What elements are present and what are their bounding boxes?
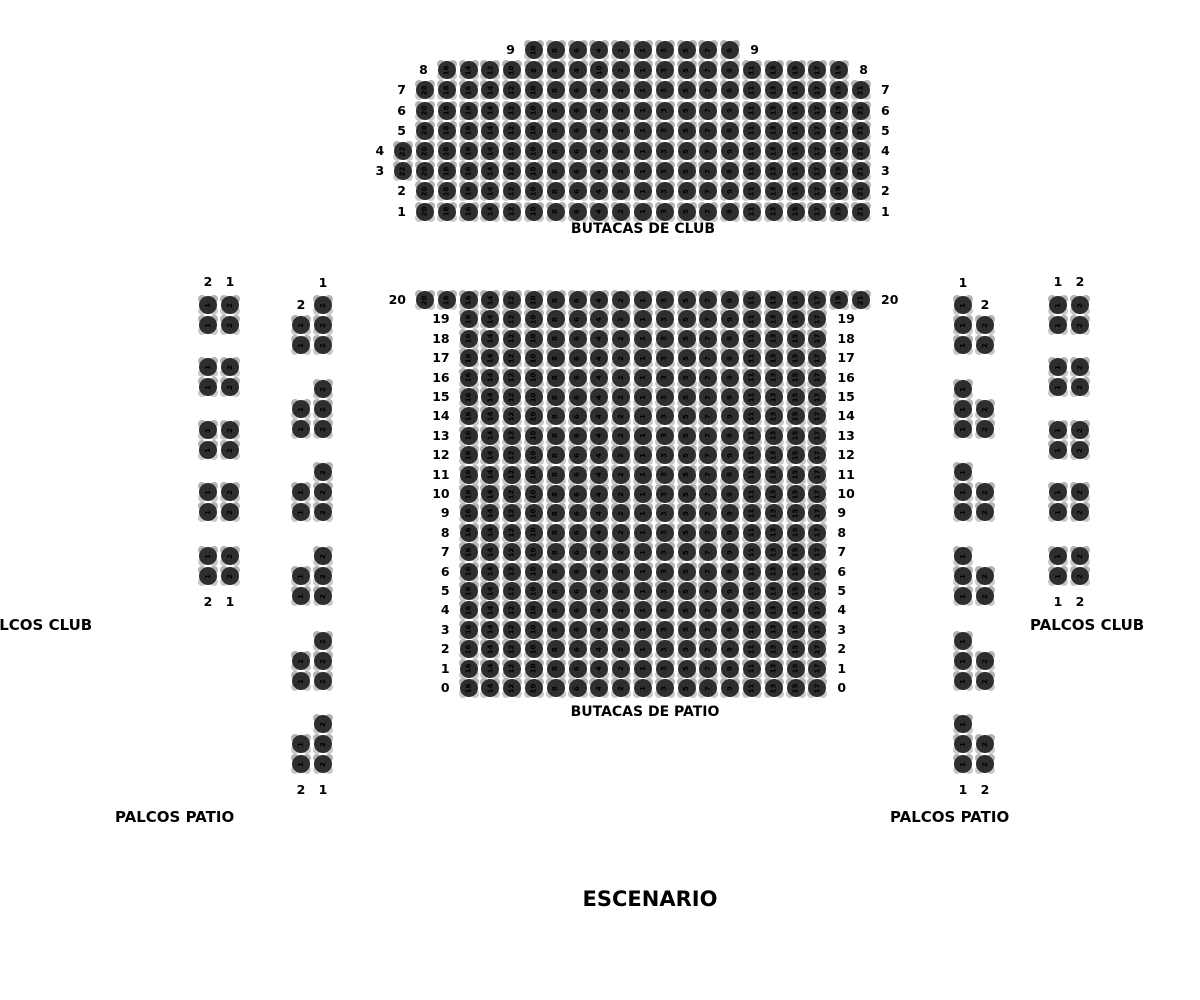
- seat[interactable]: 4: [590, 504, 608, 522]
- seat[interactable]: 3: [656, 582, 674, 600]
- seat[interactable]: 13: [765, 330, 783, 348]
- seat[interactable]: 2: [612, 142, 630, 160]
- seat[interactable]: 2: [612, 601, 630, 619]
- seat[interactable]: 16: [460, 122, 478, 140]
- seat[interactable]: 16: [460, 621, 478, 639]
- seat[interactable]: 1: [1049, 378, 1067, 396]
- seat[interactable]: 2: [612, 679, 630, 697]
- seat[interactable]: 5: [678, 407, 696, 425]
- seat[interactable]: 5: [678, 466, 696, 484]
- seat[interactable]: 15: [787, 427, 805, 445]
- seat[interactable]: 1: [292, 400, 310, 418]
- seat[interactable]: 14: [481, 142, 499, 160]
- seat[interactable]: 5: [678, 182, 696, 200]
- seat[interactable]: 5: [678, 349, 696, 367]
- seat[interactable]: 17: [808, 81, 826, 99]
- seat[interactable]: 3: [656, 291, 674, 309]
- seat[interactable]: 17: [808, 330, 826, 348]
- seat[interactable]: 1: [634, 388, 652, 406]
- seat[interactable]: 14: [481, 446, 499, 464]
- seat[interactable]: 13: [765, 485, 783, 503]
- seat[interactable]: 2: [612, 41, 630, 59]
- seat[interactable]: 9: [721, 621, 739, 639]
- seat[interactable]: 5: [678, 504, 696, 522]
- seat[interactable]: 8: [547, 142, 565, 160]
- seat[interactable]: 6: [569, 524, 587, 542]
- seat[interactable]: 13: [765, 621, 783, 639]
- seat[interactable]: 12: [503, 330, 521, 348]
- seat[interactable]: 17: [808, 640, 826, 658]
- seat[interactable]: 8: [547, 203, 565, 221]
- seat[interactable]: 5: [678, 563, 696, 581]
- seat[interactable]: 12: [503, 660, 521, 678]
- seat[interactable]: 15: [787, 81, 805, 99]
- seat[interactable]: 14: [481, 427, 499, 445]
- seat[interactable]: 13: [765, 446, 783, 464]
- seat[interactable]: 12: [503, 582, 521, 600]
- seat[interactable]: 6: [569, 640, 587, 658]
- seat[interactable]: 1: [199, 503, 217, 521]
- seat[interactable]: 18: [438, 122, 456, 140]
- seat[interactable]: 6: [569, 543, 587, 561]
- seat[interactable]: 3: [656, 41, 674, 59]
- seat[interactable]: 7: [699, 543, 717, 561]
- seat[interactable]: 6: [569, 660, 587, 678]
- seat[interactable]: 3: [656, 330, 674, 348]
- seat[interactable]: 14: [481, 524, 499, 542]
- seat[interactable]: 7: [699, 407, 717, 425]
- seat[interactable]: 11: [743, 182, 761, 200]
- seat[interactable]: 13: [765, 660, 783, 678]
- seat[interactable]: 9: [721, 81, 739, 99]
- seat[interactable]: 16: [460, 466, 478, 484]
- seat[interactable]: 8: [547, 466, 565, 484]
- seat[interactable]: 1: [199, 567, 217, 585]
- seat[interactable]: 1: [634, 61, 652, 79]
- seat[interactable]: 21: [852, 291, 870, 309]
- seat[interactable]: 6: [569, 407, 587, 425]
- seat[interactable]: 11: [743, 349, 761, 367]
- seat[interactable]: 20: [416, 81, 434, 99]
- seat[interactable]: 2: [976, 755, 994, 773]
- seat[interactable]: 14: [481, 601, 499, 619]
- seat[interactable]: 9: [721, 349, 739, 367]
- seat[interactable]: 20: [416, 182, 434, 200]
- seat[interactable]: 16: [460, 524, 478, 542]
- seat[interactable]: 10: [525, 310, 543, 328]
- seat[interactable]: 10: [525, 427, 543, 445]
- seat[interactable]: 10: [525, 182, 543, 200]
- seat[interactable]: 15: [787, 640, 805, 658]
- seat[interactable]: 11: [743, 621, 761, 639]
- seat[interactable]: 6: [569, 81, 587, 99]
- seat[interactable]: 11: [743, 162, 761, 180]
- seat[interactable]: 8: [547, 582, 565, 600]
- seat[interactable]: 10: [525, 407, 543, 425]
- seat[interactable]: 17: [808, 601, 826, 619]
- seat[interactable]: 7: [699, 349, 717, 367]
- seat[interactable]: 8: [547, 369, 565, 387]
- seat[interactable]: 9: [721, 504, 739, 522]
- seat[interactable]: 3: [656, 485, 674, 503]
- seat[interactable]: 15: [787, 543, 805, 561]
- seat[interactable]: 2: [612, 621, 630, 639]
- seat[interactable]: 1: [634, 291, 652, 309]
- seat[interactable]: 16: [460, 679, 478, 697]
- seat[interactable]: 1: [292, 483, 310, 501]
- seat[interactable]: 13: [765, 427, 783, 445]
- seat[interactable]: 1: [954, 547, 972, 565]
- seat[interactable]: 2: [976, 587, 994, 605]
- seat[interactable]: 22: [394, 142, 412, 160]
- seat[interactable]: 15: [787, 310, 805, 328]
- seat[interactable]: 19: [830, 102, 848, 120]
- seat[interactable]: 2: [612, 122, 630, 140]
- seat[interactable]: 3: [656, 81, 674, 99]
- seat[interactable]: 12: [503, 679, 521, 697]
- seat[interactable]: 1: [199, 441, 217, 459]
- seat[interactable]: 5: [678, 446, 696, 464]
- seat[interactable]: 12: [503, 524, 521, 542]
- seat[interactable]: 14: [481, 310, 499, 328]
- seat[interactable]: 2: [1071, 316, 1089, 334]
- seat[interactable]: 1: [292, 567, 310, 585]
- seat[interactable]: 16: [460, 582, 478, 600]
- seat[interactable]: 4: [590, 660, 608, 678]
- seat[interactable]: 15: [787, 563, 805, 581]
- seat[interactable]: 17: [808, 660, 826, 678]
- seat[interactable]: 10: [525, 543, 543, 561]
- seat[interactable]: 9: [721, 182, 739, 200]
- seat[interactable]: 2: [612, 310, 630, 328]
- seat[interactable]: 1: [634, 543, 652, 561]
- seat[interactable]: 14: [481, 203, 499, 221]
- seat[interactable]: 17: [808, 182, 826, 200]
- seat[interactable]: 10: [525, 349, 543, 367]
- seat[interactable]: 6: [569, 41, 587, 59]
- seat[interactable]: 5: [678, 543, 696, 561]
- seat[interactable]: 1: [954, 632, 972, 650]
- seat[interactable]: 10: [525, 142, 543, 160]
- seat[interactable]: 7: [699, 291, 717, 309]
- seat[interactable]: 15: [787, 182, 805, 200]
- seat[interactable]: 9: [721, 61, 739, 79]
- seat[interactable]: 2: [612, 369, 630, 387]
- seat[interactable]: 3: [656, 504, 674, 522]
- seat[interactable]: 8: [547, 601, 565, 619]
- seat[interactable]: 3: [656, 601, 674, 619]
- seat[interactable]: 9: [721, 446, 739, 464]
- seat[interactable]: 2: [314, 336, 332, 354]
- seat[interactable]: 17: [808, 102, 826, 120]
- seat[interactable]: 11: [743, 543, 761, 561]
- seat[interactable]: 10: [525, 563, 543, 581]
- seat[interactable]: 2: [976, 503, 994, 521]
- seat[interactable]: 6: [569, 466, 587, 484]
- seat[interactable]: 12: [503, 291, 521, 309]
- seat[interactable]: 1: [954, 755, 972, 773]
- seat[interactable]: 19: [830, 162, 848, 180]
- seat[interactable]: 11: [743, 407, 761, 425]
- seat[interactable]: 3: [656, 162, 674, 180]
- seat[interactable]: 6: [569, 102, 587, 120]
- seat[interactable]: 1: [954, 420, 972, 438]
- seat[interactable]: 4: [590, 81, 608, 99]
- seat[interactable]: 16: [460, 388, 478, 406]
- seat[interactable]: 3: [656, 427, 674, 445]
- seat[interactable]: 4: [590, 182, 608, 200]
- seat[interactable]: 2: [1071, 421, 1089, 439]
- seat[interactable]: 11: [743, 679, 761, 697]
- seat[interactable]: 1: [954, 380, 972, 398]
- seat[interactable]: 10: [525, 485, 543, 503]
- seat[interactable]: 12: [481, 61, 499, 79]
- seat[interactable]: 16: [460, 504, 478, 522]
- seat[interactable]: 1: [292, 587, 310, 605]
- seat[interactable]: 1: [634, 601, 652, 619]
- seat[interactable]: 2: [314, 632, 332, 650]
- seat[interactable]: 6: [569, 203, 587, 221]
- seat[interactable]: 2: [314, 547, 332, 565]
- seat[interactable]: 10: [525, 446, 543, 464]
- seat[interactable]: 1: [634, 310, 652, 328]
- seat[interactable]: 1: [954, 483, 972, 501]
- seat[interactable]: 1: [954, 336, 972, 354]
- seat[interactable]: 21: [852, 182, 870, 200]
- seat[interactable]: 3: [656, 122, 674, 140]
- seat[interactable]: 2: [612, 466, 630, 484]
- seat[interactable]: 13: [765, 582, 783, 600]
- seat[interactable]: 7: [699, 122, 717, 140]
- seat[interactable]: 6: [569, 621, 587, 639]
- seat[interactable]: 15: [787, 142, 805, 160]
- seat[interactable]: 6: [547, 61, 565, 79]
- seat[interactable]: 8: [547, 621, 565, 639]
- seat[interactable]: 2: [976, 567, 994, 585]
- seat[interactable]: 14: [481, 485, 499, 503]
- seat[interactable]: 5: [678, 427, 696, 445]
- seat[interactable]: 2: [314, 567, 332, 585]
- seat[interactable]: 17: [808, 388, 826, 406]
- seat[interactable]: 7: [699, 601, 717, 619]
- seat[interactable]: 7: [699, 582, 717, 600]
- seat[interactable]: 5: [678, 203, 696, 221]
- seat[interactable]: 4: [590, 543, 608, 561]
- seat[interactable]: 2: [1071, 378, 1089, 396]
- seat[interactable]: 11: [743, 81, 761, 99]
- seat[interactable]: 7: [699, 679, 717, 697]
- seat[interactable]: 12: [503, 388, 521, 406]
- seat[interactable]: 2: [314, 420, 332, 438]
- seat[interactable]: 10: [525, 330, 543, 348]
- seat[interactable]: 17: [808, 485, 826, 503]
- seat[interactable]: 1: [634, 369, 652, 387]
- seat[interactable]: 10: [525, 524, 543, 542]
- seat[interactable]: 1: [1049, 358, 1067, 376]
- seat[interactable]: 15: [787, 407, 805, 425]
- seat[interactable]: 3: [656, 142, 674, 160]
- seat[interactable]: 11: [743, 61, 761, 79]
- seat[interactable]: 7: [699, 388, 717, 406]
- seat[interactable]: 2: [976, 672, 994, 690]
- seat[interactable]: 6: [569, 291, 587, 309]
- seat[interactable]: 5: [678, 330, 696, 348]
- seat[interactable]: 1: [292, 336, 310, 354]
- seat[interactable]: 11: [743, 330, 761, 348]
- seat[interactable]: 13: [765, 543, 783, 561]
- seat[interactable]: 17: [808, 142, 826, 160]
- seat[interactable]: 14: [481, 543, 499, 561]
- seat[interactable]: 8: [547, 504, 565, 522]
- seat[interactable]: 5: [678, 485, 696, 503]
- seat[interactable]: 21: [852, 142, 870, 160]
- seat[interactable]: 1: [634, 427, 652, 445]
- seat[interactable]: 20: [416, 203, 434, 221]
- seat[interactable]: 3: [656, 524, 674, 542]
- seat[interactable]: 6: [569, 563, 587, 581]
- seat[interactable]: 4: [590, 407, 608, 425]
- seat[interactable]: 8: [525, 61, 543, 79]
- seat[interactable]: 14: [481, 81, 499, 99]
- seat[interactable]: 16: [460, 330, 478, 348]
- seat[interactable]: 14: [481, 122, 499, 140]
- seat[interactable]: 11: [743, 369, 761, 387]
- seat[interactable]: 1: [634, 621, 652, 639]
- seat[interactable]: 9: [721, 543, 739, 561]
- seat[interactable]: 6: [569, 369, 587, 387]
- seat[interactable]: 15: [787, 61, 805, 79]
- seat[interactable]: 11: [743, 388, 761, 406]
- seat[interactable]: 1: [634, 182, 652, 200]
- seat[interactable]: 1: [634, 122, 652, 140]
- seat[interactable]: 3: [656, 61, 674, 79]
- seat[interactable]: 1: [634, 485, 652, 503]
- seat[interactable]: 2: [1071, 358, 1089, 376]
- seat[interactable]: 5: [678, 640, 696, 658]
- seat[interactable]: 4: [590, 601, 608, 619]
- seat[interactable]: 14: [460, 61, 478, 79]
- seat[interactable]: 2: [976, 316, 994, 334]
- seat[interactable]: 13: [765, 81, 783, 99]
- seat[interactable]: 5: [678, 102, 696, 120]
- seat[interactable]: 4: [590, 582, 608, 600]
- seat[interactable]: 10: [525, 504, 543, 522]
- seat[interactable]: 17: [808, 203, 826, 221]
- seat[interactable]: 12: [503, 102, 521, 120]
- seat[interactable]: 9: [721, 291, 739, 309]
- seat[interactable]: 1: [1049, 316, 1067, 334]
- seat[interactable]: 13: [765, 524, 783, 542]
- seat[interactable]: 13: [765, 679, 783, 697]
- seat[interactable]: 6: [569, 601, 587, 619]
- seat[interactable]: 8: [547, 485, 565, 503]
- seat[interactable]: 1: [954, 735, 972, 753]
- seat[interactable]: 2: [314, 755, 332, 773]
- seat[interactable]: 5: [678, 310, 696, 328]
- seat[interactable]: 11: [743, 582, 761, 600]
- seat[interactable]: 13: [765, 563, 783, 581]
- seat[interactable]: 17: [808, 122, 826, 140]
- seat[interactable]: 17: [808, 466, 826, 484]
- seat[interactable]: 4: [590, 466, 608, 484]
- seat[interactable]: 2: [314, 652, 332, 670]
- seat[interactable]: 7: [699, 182, 717, 200]
- seat[interactable]: 12: [503, 203, 521, 221]
- seat[interactable]: 11: [743, 466, 761, 484]
- seat[interactable]: 7: [699, 330, 717, 348]
- seat[interactable]: 13: [765, 310, 783, 328]
- seat[interactable]: 2: [612, 349, 630, 367]
- seat[interactable]: 16: [460, 369, 478, 387]
- seat[interactable]: 7: [699, 640, 717, 658]
- seat[interactable]: 19: [830, 203, 848, 221]
- seat[interactable]: 14: [481, 640, 499, 658]
- seat[interactable]: 15: [787, 122, 805, 140]
- seat[interactable]: 1: [954, 567, 972, 585]
- seat[interactable]: 17: [808, 369, 826, 387]
- seat[interactable]: 15: [787, 679, 805, 697]
- seat[interactable]: 15: [787, 524, 805, 542]
- seat[interactable]: 5: [678, 122, 696, 140]
- seat[interactable]: 2: [612, 485, 630, 503]
- seat[interactable]: 3: [656, 182, 674, 200]
- seat[interactable]: 15: [787, 388, 805, 406]
- seat[interactable]: 9: [721, 524, 739, 542]
- seat[interactable]: 15: [787, 601, 805, 619]
- seat[interactable]: 2: [612, 102, 630, 120]
- seat[interactable]: 9: [721, 563, 739, 581]
- seat[interactable]: 16: [460, 81, 478, 99]
- seat[interactable]: 2: [612, 660, 630, 678]
- seat[interactable]: 12: [503, 504, 521, 522]
- seat[interactable]: 8: [547, 81, 565, 99]
- seat[interactable]: 14: [481, 388, 499, 406]
- seat[interactable]: 10: [525, 582, 543, 600]
- seat[interactable]: 11: [743, 102, 761, 120]
- seat[interactable]: 12: [503, 369, 521, 387]
- seat[interactable]: 1: [634, 679, 652, 697]
- seat[interactable]: 2: [612, 61, 630, 79]
- seat[interactable]: 16: [460, 203, 478, 221]
- seat[interactable]: 9: [721, 122, 739, 140]
- seat[interactable]: 14: [481, 504, 499, 522]
- seat[interactable]: 4: [590, 203, 608, 221]
- seat[interactable]: 14: [481, 162, 499, 180]
- seat[interactable]: 20: [416, 102, 434, 120]
- seat[interactable]: 7: [699, 485, 717, 503]
- seat[interactable]: 2: [612, 330, 630, 348]
- seat[interactable]: 5: [678, 369, 696, 387]
- seat[interactable]: 13: [765, 61, 783, 79]
- seat[interactable]: 6: [569, 142, 587, 160]
- seat[interactable]: 12: [503, 446, 521, 464]
- seat[interactable]: 10: [503, 61, 521, 79]
- seat[interactable]: 2: [976, 652, 994, 670]
- seat[interactable]: 2: [612, 524, 630, 542]
- seat[interactable]: 13: [765, 102, 783, 120]
- seat[interactable]: 4: [590, 310, 608, 328]
- seat[interactable]: 5: [678, 291, 696, 309]
- seat[interactable]: 2: [612, 543, 630, 561]
- seat[interactable]: 5: [678, 601, 696, 619]
- seat[interactable]: 9: [721, 330, 739, 348]
- seat[interactable]: 1: [634, 203, 652, 221]
- seat[interactable]: 2: [221, 296, 239, 314]
- seat[interactable]: 8: [547, 122, 565, 140]
- seat[interactable]: 1: [1049, 421, 1067, 439]
- seat[interactable]: 2: [612, 640, 630, 658]
- seat[interactable]: 16: [460, 291, 478, 309]
